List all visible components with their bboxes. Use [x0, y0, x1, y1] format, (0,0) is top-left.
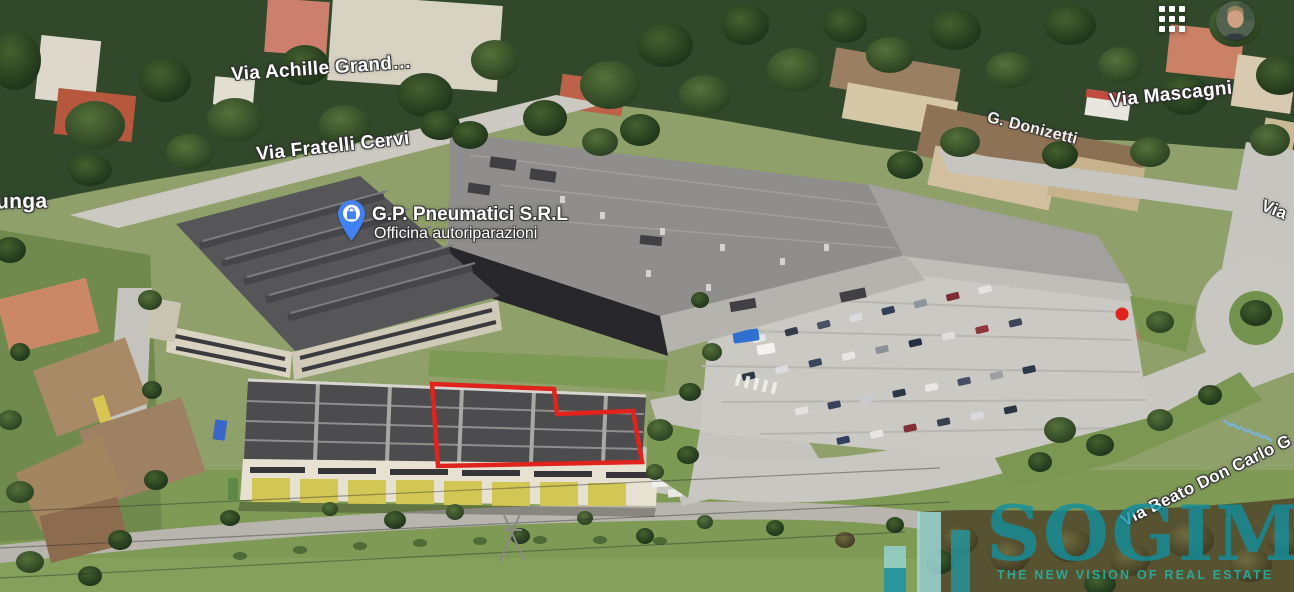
map-canvas[interactable]: unga Via Achille Grand… Via Fratelli Cer… — [0, 0, 1294, 592]
poi-title[interactable]: G.P. Pneumatici S.R.L — [372, 204, 568, 226]
poi-subtitle: Officina autoriparazioni — [374, 225, 537, 243]
google-apps-grid-icon[interactable] — [1159, 6, 1185, 32]
user-avatar[interactable] — [1216, 1, 1255, 40]
street-label-lunga: unga — [0, 190, 48, 215]
shopping-bag-pin-icon[interactable] — [338, 198, 365, 243]
aerial-imagery — [0, 0, 1294, 592]
poi-marker[interactable]: G.P. Pneumatici S.R.L Officina autoripar… — [338, 198, 718, 248]
